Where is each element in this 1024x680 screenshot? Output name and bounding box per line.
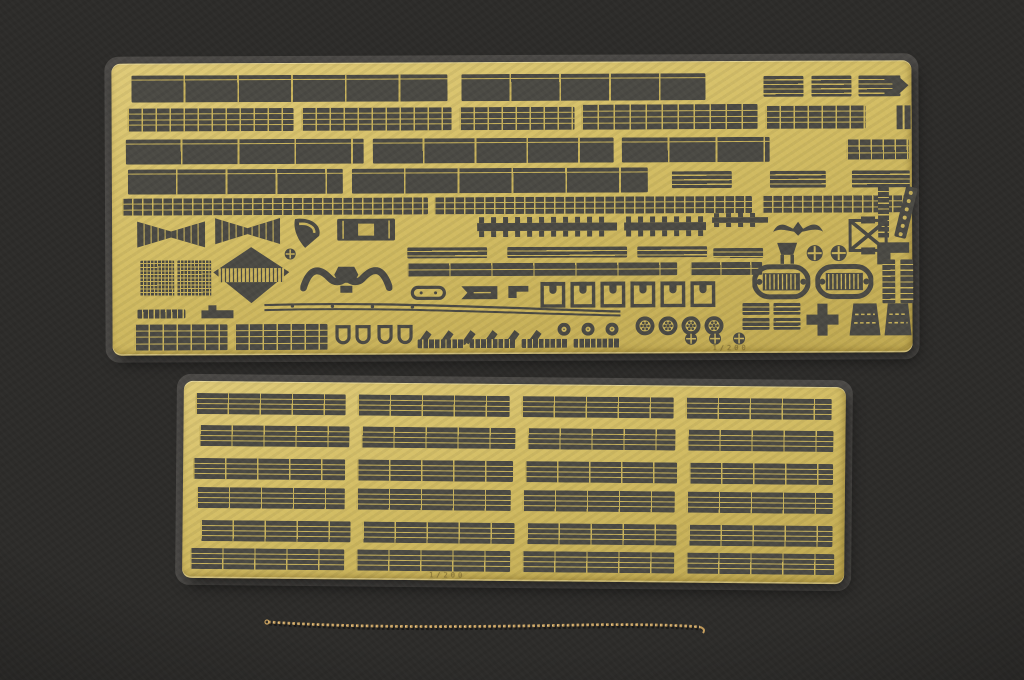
- brass-chain: [0, 0, 1024, 680]
- photo-background: 1/200 1/200: [0, 0, 1024, 680]
